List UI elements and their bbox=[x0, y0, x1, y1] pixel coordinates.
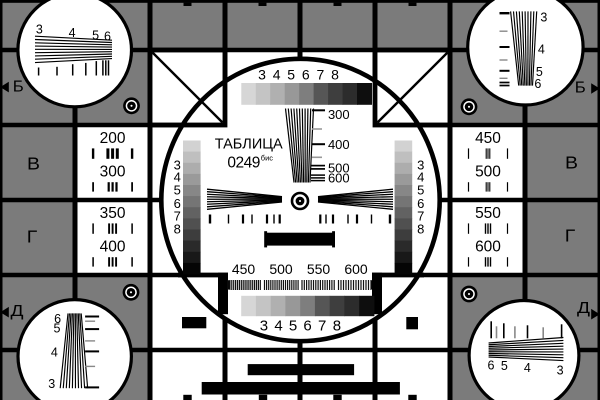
svg-text:5: 5 bbox=[287, 67, 295, 83]
svg-text:Б: Б bbox=[575, 80, 586, 97]
svg-text:Д: Д bbox=[11, 303, 25, 320]
svg-text:Д: Д bbox=[577, 300, 591, 317]
svg-text:550: 550 bbox=[475, 205, 501, 222]
svg-text:7: 7 bbox=[318, 318, 326, 335]
svg-text:3: 3 bbox=[36, 23, 43, 37]
svg-text:450: 450 bbox=[475, 130, 501, 147]
svg-text:3: 3 bbox=[557, 364, 564, 378]
svg-text:4: 4 bbox=[274, 318, 282, 335]
svg-text:400: 400 bbox=[328, 137, 350, 152]
svg-text:6: 6 bbox=[104, 30, 111, 44]
svg-text:5: 5 bbox=[92, 29, 99, 43]
svg-text:6: 6 bbox=[302, 67, 310, 83]
svg-text:6: 6 bbox=[488, 358, 495, 372]
svg-text:6: 6 bbox=[534, 77, 541, 91]
svg-text:4: 4 bbox=[51, 346, 58, 360]
svg-text:5: 5 bbox=[501, 359, 508, 373]
svg-text:500: 500 bbox=[269, 261, 293, 277]
svg-text:бис: бис bbox=[261, 154, 273, 163]
svg-text:4: 4 bbox=[524, 361, 531, 375]
svg-text:600: 600 bbox=[328, 170, 350, 185]
svg-text:В: В bbox=[27, 153, 40, 173]
svg-text:500: 500 bbox=[475, 164, 501, 181]
svg-text:5: 5 bbox=[54, 322, 61, 336]
svg-text:200: 200 bbox=[100, 130, 126, 147]
svg-text:8: 8 bbox=[417, 221, 424, 236]
svg-text:Г: Г bbox=[27, 227, 38, 247]
svg-text:4: 4 bbox=[538, 42, 545, 56]
svg-text:600: 600 bbox=[475, 239, 501, 256]
svg-text:В: В bbox=[565, 152, 578, 172]
svg-text:8: 8 bbox=[333, 318, 341, 335]
svg-text:Г: Г bbox=[565, 226, 576, 246]
svg-text:300: 300 bbox=[328, 107, 350, 122]
svg-text:3: 3 bbox=[540, 11, 547, 25]
svg-text:400: 400 bbox=[100, 239, 126, 256]
svg-text:300: 300 bbox=[100, 164, 126, 181]
svg-text:6: 6 bbox=[303, 318, 311, 335]
svg-text:8: 8 bbox=[174, 221, 181, 236]
svg-text:8: 8 bbox=[331, 67, 339, 83]
svg-text:Б: Б bbox=[13, 78, 24, 95]
svg-text:3: 3 bbox=[258, 67, 266, 83]
svg-text:0249: 0249 bbox=[227, 154, 259, 171]
svg-text:4: 4 bbox=[273, 67, 281, 83]
svg-text:350: 350 bbox=[100, 205, 126, 222]
svg-text:550: 550 bbox=[307, 261, 331, 277]
svg-text:7: 7 bbox=[317, 67, 325, 83]
svg-text:3: 3 bbox=[260, 318, 268, 335]
svg-text:5: 5 bbox=[289, 318, 297, 335]
svg-text:ТАБЛИЦА: ТАБЛИЦА bbox=[215, 137, 283, 153]
svg-text:450: 450 bbox=[232, 261, 256, 277]
svg-text:600: 600 bbox=[344, 261, 368, 277]
svg-text:3: 3 bbox=[48, 377, 55, 391]
